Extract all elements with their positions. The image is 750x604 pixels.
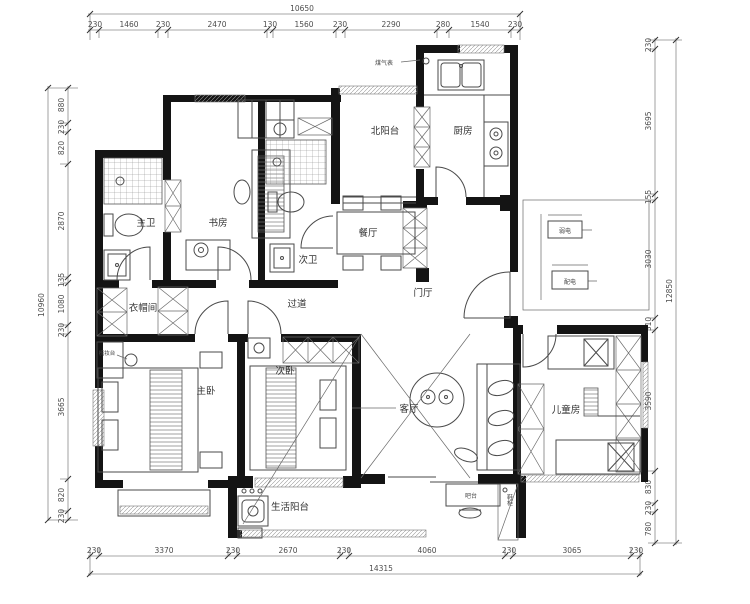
dim-right-0: 230 xyxy=(644,38,653,53)
dim-right-1: 3695 xyxy=(644,111,653,130)
dim-bottom-6: 230 xyxy=(502,546,517,555)
dim-left-1: 230 xyxy=(57,120,66,135)
dim-top-3: 2470 xyxy=(207,20,226,29)
wardrobe-cloakroom-right xyxy=(158,287,188,335)
dim-right-2: 155 xyxy=(644,190,653,205)
dimension-chain-right: 12850 230 3695 155 3030 310 3590 830 230… xyxy=(644,37,682,546)
dim-top-2: 230 xyxy=(156,20,171,29)
window-kitchen xyxy=(458,45,504,53)
weak-current-label: 弱电 xyxy=(559,227,571,235)
label-dining: 餐厅 xyxy=(358,227,378,239)
desk-kids xyxy=(584,388,640,416)
door-kitchen xyxy=(436,167,466,197)
dim-bottom-0: 230 xyxy=(87,546,102,555)
bay-window-sill xyxy=(120,506,208,514)
wardrobe-kids-left xyxy=(518,384,544,474)
dim-left-9: 230 xyxy=(57,509,66,524)
bed-kids-top xyxy=(548,336,614,369)
dim-top-overall: 10650 xyxy=(290,4,314,13)
label-bar-counter: 吧台 xyxy=(465,492,477,500)
window-second-bedroom xyxy=(255,478,343,487)
round-table-living xyxy=(410,373,464,427)
label-north-balcony: 北阳台 xyxy=(371,125,400,137)
cabinet-second-bath xyxy=(298,118,332,135)
floor-plan-page: 10650 230 1460 230 2470 130 1560 230 229… xyxy=(0,0,750,600)
dim-top-0: 230 xyxy=(88,20,103,29)
label-corridor: 过道 xyxy=(287,298,307,310)
bed-second xyxy=(248,338,346,470)
door-second-bath xyxy=(301,216,333,248)
dim-bottom-2: 230 xyxy=(226,546,241,555)
label-study: 书房 xyxy=(208,217,227,229)
label-dresser: 梳妆台 xyxy=(99,349,116,357)
stove-kitchen xyxy=(484,95,508,197)
label-master-bath: 主卫 xyxy=(136,217,156,229)
vanity-master-bath xyxy=(104,250,130,280)
dimension-chain-top: 10650 230 1460 230 2470 130 1560 230 229… xyxy=(87,4,523,40)
electrical-inset: 弱电 配电 xyxy=(523,200,649,310)
plant-table-study xyxy=(186,240,230,270)
label-cloakroom: 衣帽间 xyxy=(129,302,158,314)
door-second-bedroom xyxy=(248,301,281,334)
label-service-balcony: 生活阳台 xyxy=(271,501,309,513)
window-north-balcony xyxy=(339,86,417,94)
label-foyer: 门厅 xyxy=(413,287,433,299)
dimension-chain-left: 10960 880 230 820 2870 135 1080 230 3665… xyxy=(37,85,78,523)
closet-bath-divider xyxy=(165,180,181,232)
sink-kitchen xyxy=(424,60,510,95)
vanity-second-bath xyxy=(270,244,294,272)
dim-right-3: 3030 xyxy=(644,249,653,268)
dim-bottom-3: 2670 xyxy=(278,546,297,555)
dim-right-overall: 12850 xyxy=(665,279,674,303)
window-kids-room-south xyxy=(521,475,639,482)
dim-bottom-1: 3370 xyxy=(154,546,173,555)
dim-left-6: 230 xyxy=(57,323,66,338)
power-box-label: 配电 xyxy=(564,278,576,286)
dim-top-7: 2290 xyxy=(381,20,400,29)
sliding-door-living-balcony xyxy=(388,477,478,482)
dim-top-10: 230 xyxy=(508,20,523,29)
dim-left-4: 135 xyxy=(57,273,66,288)
label-second-bedroom: 次卧 xyxy=(275,365,295,377)
label-master-bedroom: 主卧 xyxy=(196,385,216,397)
dim-left-overall: 10960 xyxy=(37,293,46,317)
dim-bottom-7: 3065 xyxy=(562,546,581,555)
dim-top-4: 130 xyxy=(263,20,278,29)
door-master-bath xyxy=(117,247,150,280)
dim-right-8: 780 xyxy=(644,522,653,537)
dim-left-8: 820 xyxy=(57,488,66,503)
dimension-chain-bottom: 14315 230 3370 230 2670 230 4060 230 306… xyxy=(87,546,644,577)
label-kids-room: 儿童房 xyxy=(552,404,581,416)
dim-right-7: 230 xyxy=(644,501,653,516)
shoe-cabinet-knob xyxy=(503,488,507,492)
shower-second-bath xyxy=(266,140,326,184)
dim-top-1: 1460 xyxy=(119,20,138,29)
label-living: 客厅 xyxy=(399,403,419,415)
dim-left-7: 3665 xyxy=(57,397,66,416)
door-kids-room xyxy=(523,334,556,367)
dim-left-0: 880 xyxy=(57,98,66,113)
fixtures xyxy=(97,58,640,538)
label-second-bath: 次卫 xyxy=(298,254,318,266)
shoe-cabinet-balcony xyxy=(498,484,518,540)
dim-bottom-4: 230 xyxy=(337,546,352,555)
bar-counter xyxy=(446,484,500,518)
door-study xyxy=(218,247,251,280)
bed-master xyxy=(98,352,222,472)
dim-top-9: 1540 xyxy=(470,20,489,29)
window-kids-room xyxy=(643,362,648,428)
dim-bottom-8: 230 xyxy=(629,546,644,555)
dim-left-3: 2870 xyxy=(57,211,66,230)
dim-top-5: 1560 xyxy=(294,20,313,29)
sofa-living xyxy=(453,364,520,470)
floor-plan-canvas: 10650 230 1460 230 2470 130 1560 230 229… xyxy=(0,0,750,600)
window-service-balcony xyxy=(240,530,426,537)
door-master-bedroom xyxy=(195,301,228,334)
dim-top-8: 280 xyxy=(436,20,451,29)
label-shoe-cabinet: 鞋柜 xyxy=(506,493,513,507)
cabinet-balcony-kitchen xyxy=(414,107,430,167)
dim-top-6: 230 xyxy=(333,20,348,29)
label-gas-meter: 煤气表 xyxy=(375,59,393,67)
label-kitchen: 厨房 xyxy=(453,125,472,137)
dim-left-2: 820 xyxy=(57,141,66,156)
dim-left-5: 1080 xyxy=(57,294,66,313)
wardrobe-kids-right xyxy=(616,336,641,472)
door-entrance xyxy=(464,272,510,318)
dim-bottom-overall: 14315 xyxy=(369,564,393,573)
dim-bottom-5: 4060 xyxy=(417,546,436,555)
shower-master-bath xyxy=(104,158,162,204)
